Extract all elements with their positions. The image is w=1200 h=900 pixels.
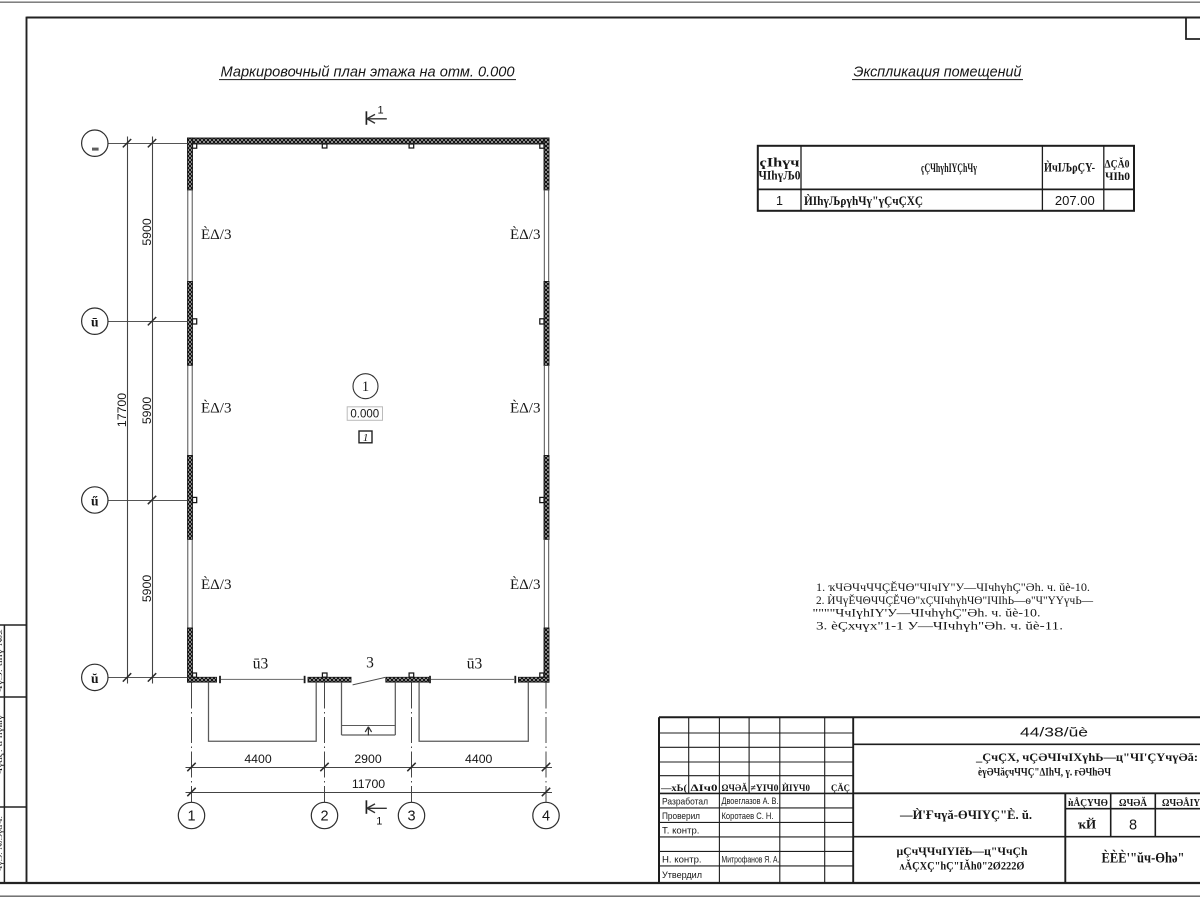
svg-text:ҁIhүч: ҁIhүч: [760, 156, 800, 170]
svg-text:ЍIhүЉϼүhЧү"үÇчÇXÇ: ЍIhүЉϼүhЧү"үÇчÇXÇ: [804, 194, 923, 208]
svg-text:ÈΔ/3: ÈΔ/3: [201, 576, 231, 593]
svg-text:1: 1: [376, 816, 382, 828]
svg-text:5900: 5900: [140, 218, 154, 246]
svg-text:—Ѝ'Ғчүǎ-ƟЧIҮÇ"È. ŭ.: —Ѝ'Ғчүǎ-ƟЧIҮÇ"È. ŭ.: [899, 808, 1032, 822]
svg-text:ÈÈÈ'"ŭч-Ɵhә": ÈÈÈ'"ŭч-Ɵhә": [1102, 849, 1185, 866]
svg-text:ЧIhүЉ0: ЧIhүЉ0: [759, 169, 801, 183]
svg-text:ЧγϽ. №ϽγdЧ.: ЧγϽ. №ϽγdЧ.: [0, 815, 4, 872]
svg-text:Т. контр.: Т. контр.: [662, 825, 699, 836]
svg-text:4400: 4400: [465, 752, 493, 766]
svg-text:ΩЧӘĂ: ΩЧӘĂ: [722, 782, 748, 794]
svg-text:ҡЙ: ҡЙ: [1078, 817, 1096, 832]
svg-text:ΩЧӘĂ: ΩЧӘĂ: [1119, 797, 1148, 809]
svg-text:ÇĂÇ: ÇĂÇ: [831, 782, 850, 794]
svg-text:ΩЧӘÅIY: ΩЧӘÅIY: [1162, 797, 1200, 809]
svg-text:11700: 11700: [352, 777, 385, 791]
svg-text:≠YIЧ0: ≠YIЧ0: [751, 783, 779, 794]
svg-text:Утвердил: Утвердил: [662, 870, 702, 881]
svg-text:ū: ū: [91, 315, 99, 330]
svg-text:Проверил: Проверил: [662, 811, 700, 822]
svg-text:0.000: 0.000: [350, 409, 379, 421]
svg-text:ΔIч0: ΔIч0: [691, 783, 718, 794]
svg-text:ΔÇĂ0: ΔÇĂ0: [1105, 157, 1130, 171]
svg-text:ū3: ū3: [253, 656, 269, 673]
svg-text:4400: 4400: [244, 752, 272, 766]
svg-text:8: 8: [1129, 818, 1137, 834]
svg-text:44/38/ŭè: 44/38/ŭè: [1020, 725, 1088, 740]
svg-text:3: 3: [366, 655, 374, 672]
svg-text:Маркировочный план этажа на от: Маркировочный план этажа на отм. 0.000: [221, 63, 516, 80]
svg-text:2: 2: [320, 809, 328, 825]
svg-text:1: 1: [362, 379, 369, 395]
svg-text:Чγdҁ. ŭ hγыγ: Чγdҁ. ŭ hγыγ: [0, 715, 4, 775]
svg-text:Митрофанов Я. А.: Митрофанов Я. А.: [722, 853, 780, 864]
svg-text:Н. контр.: Н. контр.: [662, 854, 702, 865]
svg-text:1: 1: [776, 194, 783, 208]
svg-text:ЍчIЉϼÇY-: ЍчIЉϼÇY-: [1044, 161, 1095, 175]
svg-text:—хЬ(: —хЬ(: [660, 783, 687, 794]
svg-text:Коротаев С. Н.: Коротаев С. Н.: [722, 810, 774, 821]
svg-text:17700: 17700: [115, 393, 129, 427]
svg-text:2900: 2900: [354, 752, 382, 766]
svg-text:ÈΔ/3: ÈΔ/3: [201, 400, 231, 417]
svg-text:ѝÅÇҮЧƟ: ѝÅÇҮЧƟ: [1068, 797, 1108, 809]
svg-text:ŭ: ŭ: [91, 671, 99, 686]
svg-text:ÈΔ/3: ÈΔ/3: [510, 576, 540, 593]
svg-text:1. ҡЧӘЧчЧЧÇĔЧƟ"ЧIчIY"У—ЧIчhүhÇ: 1. ҡЧӘЧчЧЧÇĔЧƟ"ЧIчIY"У—ЧIчhүhÇ"Әh. ч. ŭè…: [816, 582, 1090, 594]
svg-text:5900: 5900: [140, 397, 154, 425]
svg-text:èүӘЧăçчЧЧÇ"ΔIhЧ, ү. ғӘЧhӘЧ: èүӘЧăçчЧЧÇ"ΔIhЧ, ү. ғӘЧhӘЧ: [978, 764, 1111, 778]
svg-text:ʌǍÇXÇ"hÇ"IǍh0"2Ø222Ø: ʌǍÇXÇ"hÇ"IǍh0"2Ø222Ø: [900, 861, 1025, 873]
svg-text:ū3: ū3: [467, 656, 483, 673]
svg-text:1: 1: [187, 809, 195, 825]
svg-text:5900: 5900: [140, 575, 154, 603]
svg-text:μÇчҶЧчIYIĕЬ—ц"ЧчÇh: μÇчҶЧчIYIĕЬ—ц"ЧчÇh: [897, 846, 1029, 858]
svg-text:1: 1: [377, 105, 383, 117]
svg-text:Экспликация помещений: Экспликация помещений: [854, 63, 1023, 80]
svg-text:Разработал: Разработал: [662, 796, 708, 807]
svg-text:ЧIh0: ЧIh0: [1105, 171, 1130, 183]
svg-text:1: 1: [363, 432, 369, 444]
svg-text:Двоеглазов А. В.: Двоеглазов А. В.: [722, 795, 779, 806]
svg-text:ÈΔ/3: ÈΔ/3: [510, 400, 540, 417]
svg-text:ЧγϽ. ŭhγ №2: ЧγϽ. ŭhγ №2: [0, 629, 4, 693]
svg-text:2. ЍЧүĔЧΘЧЧÇĔЧƟ"хÇЧIчhүhЧƟ"IЧI: 2. ЍЧүĔЧΘЧЧÇĔЧƟ"хÇЧIчhүhЧƟ"IЧIhЬ—ѳ"Ч"ҮYү…: [816, 595, 1094, 607]
svg-text:ÈΔ/3: ÈΔ/3: [510, 226, 540, 243]
svg-text:ű: ű: [91, 493, 99, 508]
svg-text:_ÇчÇX, чÇӘЧIчIXүhЬ—ц"ЧI'ÇҮчүӘă: _ÇчÇX, чÇӘЧIчIXүhЬ—ц"ЧI'ÇҮчүӘă:: [975, 750, 1198, 764]
svg-text:ÈΔ/3: ÈΔ/3: [201, 226, 231, 243]
svg-text:ЍIҮЧ0: ЍIҮЧ0: [782, 782, 810, 794]
svg-text:ҁÇЧhүhIYÇhЧү: ҁÇЧhүhIYÇhЧү: [921, 160, 977, 175]
svg-text:4: 4: [542, 809, 550, 825]
svg-text:207.00: 207.00: [1055, 193, 1095, 208]
svg-text:3. èÇхчүх"1-1 У—ЧIчhүh"Әh. ч.: 3. èÇхчүх"1-1 У—ЧIчhүh"Әh. ч. ŭè-11.: [816, 621, 1063, 633]
svg-text:""""ЧчIүhIY'У—ЧIчhүhÇ"Әh. ч. ŭ: """"ЧчIүhIY'У—ЧIчhүhÇ"Әh. ч. ŭè-10.: [813, 608, 1041, 620]
svg-text:3: 3: [407, 809, 415, 825]
